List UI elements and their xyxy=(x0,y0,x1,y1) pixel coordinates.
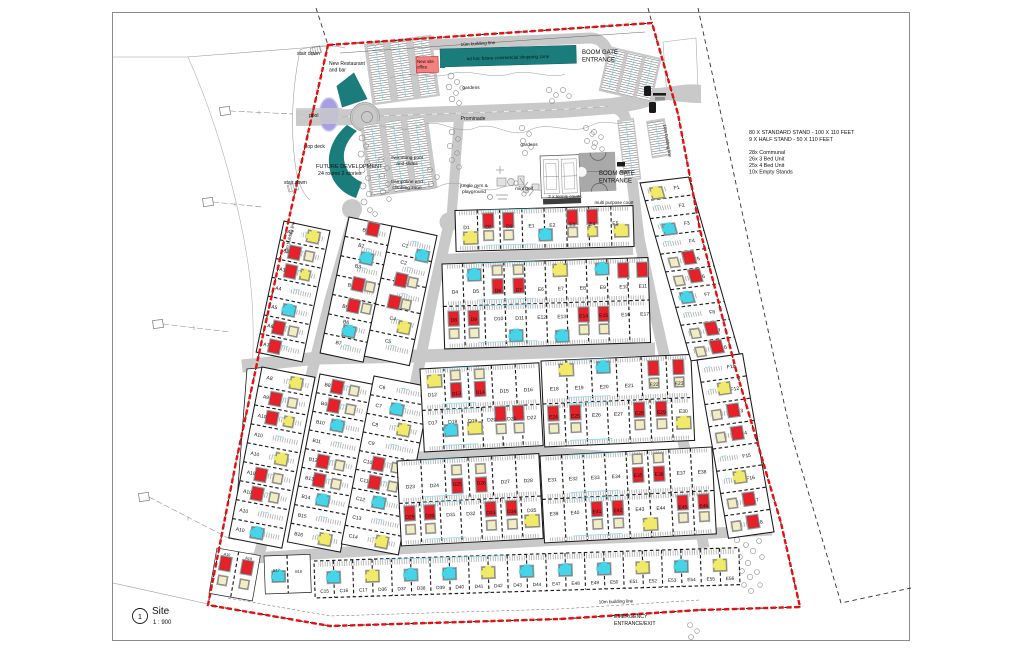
svg-text:E16: E16 xyxy=(621,312,630,318)
svg-text:C9: C9 xyxy=(368,440,376,447)
svg-text:1: 1 xyxy=(138,612,142,621)
svg-text:E18: E18 xyxy=(550,386,559,392)
svg-text:C17: C17 xyxy=(359,587,368,592)
svg-text:New Restaurant: New Restaurant xyxy=(329,61,365,67)
svg-text:B17: B17 xyxy=(273,568,280,572)
svg-text:pool: pool xyxy=(309,113,318,119)
svg-text:D35: D35 xyxy=(527,508,537,514)
svg-text:E50: E50 xyxy=(610,579,619,584)
svg-text:E36: E36 xyxy=(655,472,664,478)
svg-text:E24: E24 xyxy=(549,414,558,420)
svg-text:E2: E2 xyxy=(549,223,556,229)
svg-text:E13: E13 xyxy=(557,314,566,320)
svg-text:playground: playground xyxy=(462,189,486,195)
svg-text:E15: E15 xyxy=(599,313,608,319)
svg-text:ENTRANCE: ENTRANCE xyxy=(599,179,632,185)
svg-text:D3: D3 xyxy=(506,224,513,230)
svg-text:D17: D17 xyxy=(428,420,438,426)
svg-text:E28: E28 xyxy=(635,411,644,417)
svg-text:E9: E9 xyxy=(600,285,607,291)
svg-text:D29: D29 xyxy=(405,514,415,520)
svg-text:ENTRANCE/EXIT: ENTRANCE/EXIT xyxy=(614,621,656,627)
svg-text:D25: D25 xyxy=(453,482,463,488)
svg-text:ENTRANCE: ENTRANCE xyxy=(582,58,615,64)
svg-text:E10: E10 xyxy=(619,284,628,290)
svg-text:E48: E48 xyxy=(571,581,580,586)
svg-text:climbing zone: climbing zone xyxy=(392,185,422,191)
svg-text:E25: E25 xyxy=(571,413,580,419)
svg-text:E4: E4 xyxy=(589,222,596,228)
svg-text:C15: C15 xyxy=(320,589,329,594)
svg-text:D39: D39 xyxy=(436,585,445,590)
svg-text:D24: D24 xyxy=(430,483,440,489)
svg-text:D27: D27 xyxy=(501,479,511,485)
svg-text:E52: E52 xyxy=(649,578,658,583)
svg-text:E56: E56 xyxy=(726,576,735,581)
svg-text:Prominade: Prominade xyxy=(460,116,485,122)
svg-text:26x 3 Bed Unit: 26x 3 Bed Unit xyxy=(749,157,785,163)
svg-text:D2: D2 xyxy=(485,224,492,230)
svg-text:E34: E34 xyxy=(612,474,621,480)
svg-text:stair down: stair down xyxy=(284,180,307,186)
svg-text:E39: E39 xyxy=(549,511,558,517)
svg-text:D16: D16 xyxy=(524,387,534,393)
svg-text:D20: D20 xyxy=(487,417,497,423)
svg-text:E20: E20 xyxy=(600,384,609,390)
svg-text:and slides: and slides xyxy=(396,161,418,167)
svg-text:E6: E6 xyxy=(538,287,545,293)
svg-text:E33: E33 xyxy=(591,475,600,481)
svg-text:FUTURE DEVELOPMENT: FUTURE DEVELOPMENT xyxy=(316,164,383,170)
svg-text:10x Empty Stands: 10x Empty Stands xyxy=(749,170,793,176)
svg-text:office: office xyxy=(417,65,428,70)
svg-text:28x Communal: 28x Communal xyxy=(749,150,785,156)
svg-text:BOOM GATE: BOOM GATE xyxy=(582,50,618,56)
svg-text:E53: E53 xyxy=(668,578,677,583)
svg-text:D19: D19 xyxy=(468,418,478,424)
svg-text:E11: E11 xyxy=(638,284,647,290)
svg-text:D4: D4 xyxy=(452,290,459,296)
svg-text:E54: E54 xyxy=(687,577,696,582)
svg-text:top deck: top deck xyxy=(306,144,325,150)
svg-text:D30: D30 xyxy=(425,513,435,519)
svg-text:D36: D36 xyxy=(378,587,387,592)
svg-text:D7: D7 xyxy=(516,287,523,293)
svg-text:F15: F15 xyxy=(742,453,752,460)
svg-text:D26: D26 xyxy=(477,480,487,486)
svg-text:D11: D11 xyxy=(515,315,524,321)
svg-text:D8: D8 xyxy=(450,318,457,324)
svg-text:E30: E30 xyxy=(679,409,688,415)
svg-text:E7: E7 xyxy=(558,286,565,292)
svg-text:C8: C8 xyxy=(371,422,379,429)
svg-text:E12: E12 xyxy=(537,315,546,321)
svg-text:mini golf: mini golf xyxy=(515,186,534,192)
svg-text:D33: D33 xyxy=(486,510,496,516)
svg-text:E19: E19 xyxy=(575,385,584,391)
svg-text:D14: D14 xyxy=(476,390,486,396)
svg-text:D40: D40 xyxy=(455,584,464,589)
svg-text:E22: E22 xyxy=(650,382,659,388)
svg-text:trampoline and: trampoline and xyxy=(391,179,423,185)
svg-text:D43: D43 xyxy=(513,582,522,587)
svg-text:D5: D5 xyxy=(473,289,480,295)
svg-text:2 x tennis courts: 2 x tennis courts xyxy=(548,194,582,199)
svg-text:E40: E40 xyxy=(570,510,579,516)
svg-text:E46: E46 xyxy=(699,503,708,509)
svg-text:D10: D10 xyxy=(494,316,504,322)
svg-text:E21: E21 xyxy=(625,383,634,389)
svg-text:E27: E27 xyxy=(614,411,623,417)
svg-text:D42: D42 xyxy=(494,583,503,588)
svg-text:D32: D32 xyxy=(466,511,476,517)
svg-text:D13: D13 xyxy=(452,391,462,397)
svg-text:C6: C6 xyxy=(378,384,386,391)
svg-text:E42: E42 xyxy=(613,508,622,514)
svg-text:E51: E51 xyxy=(629,579,638,584)
svg-text:multi purpose court: multi purpose court xyxy=(594,200,634,205)
svg-text:D28: D28 xyxy=(523,478,533,484)
svg-text:E26: E26 xyxy=(592,412,601,418)
svg-text:E8: E8 xyxy=(580,285,587,291)
svg-text:stair down: stair down xyxy=(297,51,320,57)
svg-text:D9: D9 xyxy=(470,317,477,323)
svg-text:B18: B18 xyxy=(295,570,302,574)
svg-text:D12: D12 xyxy=(428,392,438,398)
svg-text:E32: E32 xyxy=(569,476,578,482)
svg-text:E43: E43 xyxy=(635,507,644,513)
svg-text:D22: D22 xyxy=(527,415,537,421)
svg-text:gardens: gardens xyxy=(520,142,538,148)
svg-text:EMERGENCY: EMERGENCY xyxy=(614,614,648,620)
svg-text:E37: E37 xyxy=(677,470,686,476)
svg-text:D41: D41 xyxy=(475,584,484,589)
svg-text:D34: D34 xyxy=(507,509,517,515)
svg-text:D6: D6 xyxy=(495,288,502,294)
svg-text:BOOM GATE: BOOM GATE xyxy=(599,171,635,177)
svg-text:swimming pool: swimming pool xyxy=(391,155,423,161)
svg-text:E45: E45 xyxy=(678,504,687,510)
svg-text:gardens: gardens xyxy=(462,85,480,91)
svg-text:80 X STANDARD STAND - 100 X 11: 80 X STANDARD STAND - 100 X 110 FEET xyxy=(749,130,855,136)
svg-text:E41: E41 xyxy=(592,509,601,515)
svg-text:D21: D21 xyxy=(507,416,517,422)
svg-text:E31: E31 xyxy=(548,477,557,483)
svg-text:D1: D1 xyxy=(463,225,470,231)
svg-text:E23: E23 xyxy=(675,381,684,387)
svg-text:E5: E5 xyxy=(612,221,619,227)
svg-text:D38: D38 xyxy=(417,586,426,591)
svg-text:Site: Site xyxy=(152,606,170,617)
svg-text:1 : 900: 1 : 900 xyxy=(153,620,172,626)
svg-text:9 X HALF STAND - 50 X 110 FEET: 9 X HALF STAND - 50 X 110 FEET xyxy=(749,137,834,143)
svg-text:E35: E35 xyxy=(634,473,643,479)
svg-text:E17: E17 xyxy=(640,312,649,318)
svg-text:E14: E14 xyxy=(579,313,588,319)
svg-text:jungle gym &: jungle gym & xyxy=(459,183,489,189)
svg-text:New site: New site xyxy=(417,59,434,64)
svg-text:E1: E1 xyxy=(528,223,535,229)
svg-text:E55: E55 xyxy=(707,576,716,581)
svg-text:D31: D31 xyxy=(446,512,456,518)
svg-text:E38: E38 xyxy=(697,469,706,475)
svg-text:C7: C7 xyxy=(375,403,383,410)
svg-text:24 rooms 2 stories: 24 rooms 2 stories xyxy=(318,171,362,177)
svg-text:D15: D15 xyxy=(500,388,510,394)
svg-text:E3: E3 xyxy=(569,222,576,228)
svg-text:E47: E47 xyxy=(552,581,561,586)
svg-text:and bar: and bar xyxy=(329,68,346,74)
svg-text:D44: D44 xyxy=(533,582,542,587)
svg-text:E44: E44 xyxy=(656,506,665,512)
svg-text:D18: D18 xyxy=(448,419,458,425)
svg-text:D23: D23 xyxy=(406,484,416,490)
svg-text:25x 4 Bed Unit: 25x 4 Bed Unit xyxy=(749,163,785,169)
svg-text:E29: E29 xyxy=(657,410,666,416)
svg-text:D37: D37 xyxy=(397,586,406,591)
svg-text:C16: C16 xyxy=(340,588,349,593)
svg-text:E49: E49 xyxy=(591,580,600,585)
